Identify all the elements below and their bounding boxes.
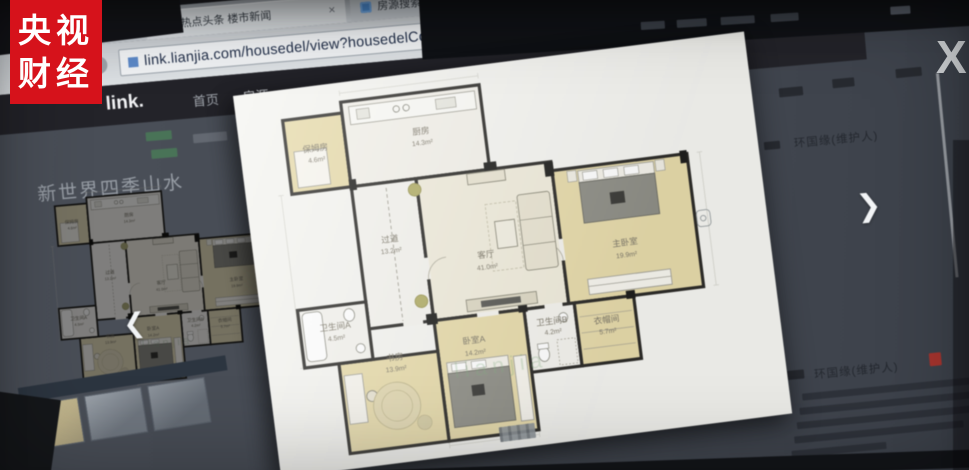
carousel-next-arrow[interactable]: ❯	[855, 187, 883, 224]
blurred-text-line	[764, 141, 781, 150]
cctv-finance-logo: 央视 财经	[10, 0, 102, 104]
blurred-text-line	[890, 6, 910, 15]
agent-red-badge-icon	[929, 352, 942, 366]
blurred-text-line	[677, 18, 707, 28]
site-favicon-icon	[128, 56, 139, 67]
photo-dark-edge	[953, 140, 969, 470]
floorplan-lightbox-page	[233, 31, 792, 470]
thumbnail-photo-2[interactable]	[147, 377, 211, 432]
carousel-prev-arrow[interactable]: ❮	[122, 307, 147, 340]
blurred-text-line	[720, 15, 754, 25]
listing-tag-badge	[145, 130, 172, 141]
blurred-text-line	[786, 369, 805, 380]
tab-close-icon[interactable]: ×	[328, 2, 336, 17]
cctv-logo-line1: 央视	[10, 10, 102, 53]
floorplan-image[interactable]	[261, 43, 739, 467]
photo-of-monitor: 2017热点头条 楼市新闻 × 房源搜索平台 经纪查询 link.lianjia…	[0, 0, 969, 470]
cctv-logo-line2: 财经	[10, 53, 102, 96]
blurred-text-line	[779, 86, 804, 97]
blurred-text-line	[641, 21, 665, 30]
page-favicon-icon	[360, 1, 372, 13]
listing-tag-badge	[151, 148, 178, 159]
blurred-text-line	[895, 67, 922, 78]
scale-badge	[499, 423, 537, 442]
maintainer-name[interactable]: 环国缘(维护人)	[793, 127, 879, 151]
corner-x-watermark: X	[936, 30, 967, 84]
thumbnail-photo-1[interactable]	[84, 387, 148, 442]
screen-photo-layer: 2017热点头条 楼市新闻 × 房源搜索平台 经纪查询 link.lianjia…	[0, 0, 969, 470]
nav-item-home[interactable]: 首页	[192, 89, 220, 110]
blurred-text-line	[193, 131, 228, 143]
photo-dark-corner	[0, 391, 61, 470]
link-logo[interactable]: link.	[105, 91, 145, 116]
maintainer-name[interactable]: 环国缘(维护人)	[813, 358, 899, 382]
blurred-text-line	[832, 77, 855, 88]
blurred-text-line	[770, 12, 798, 22]
